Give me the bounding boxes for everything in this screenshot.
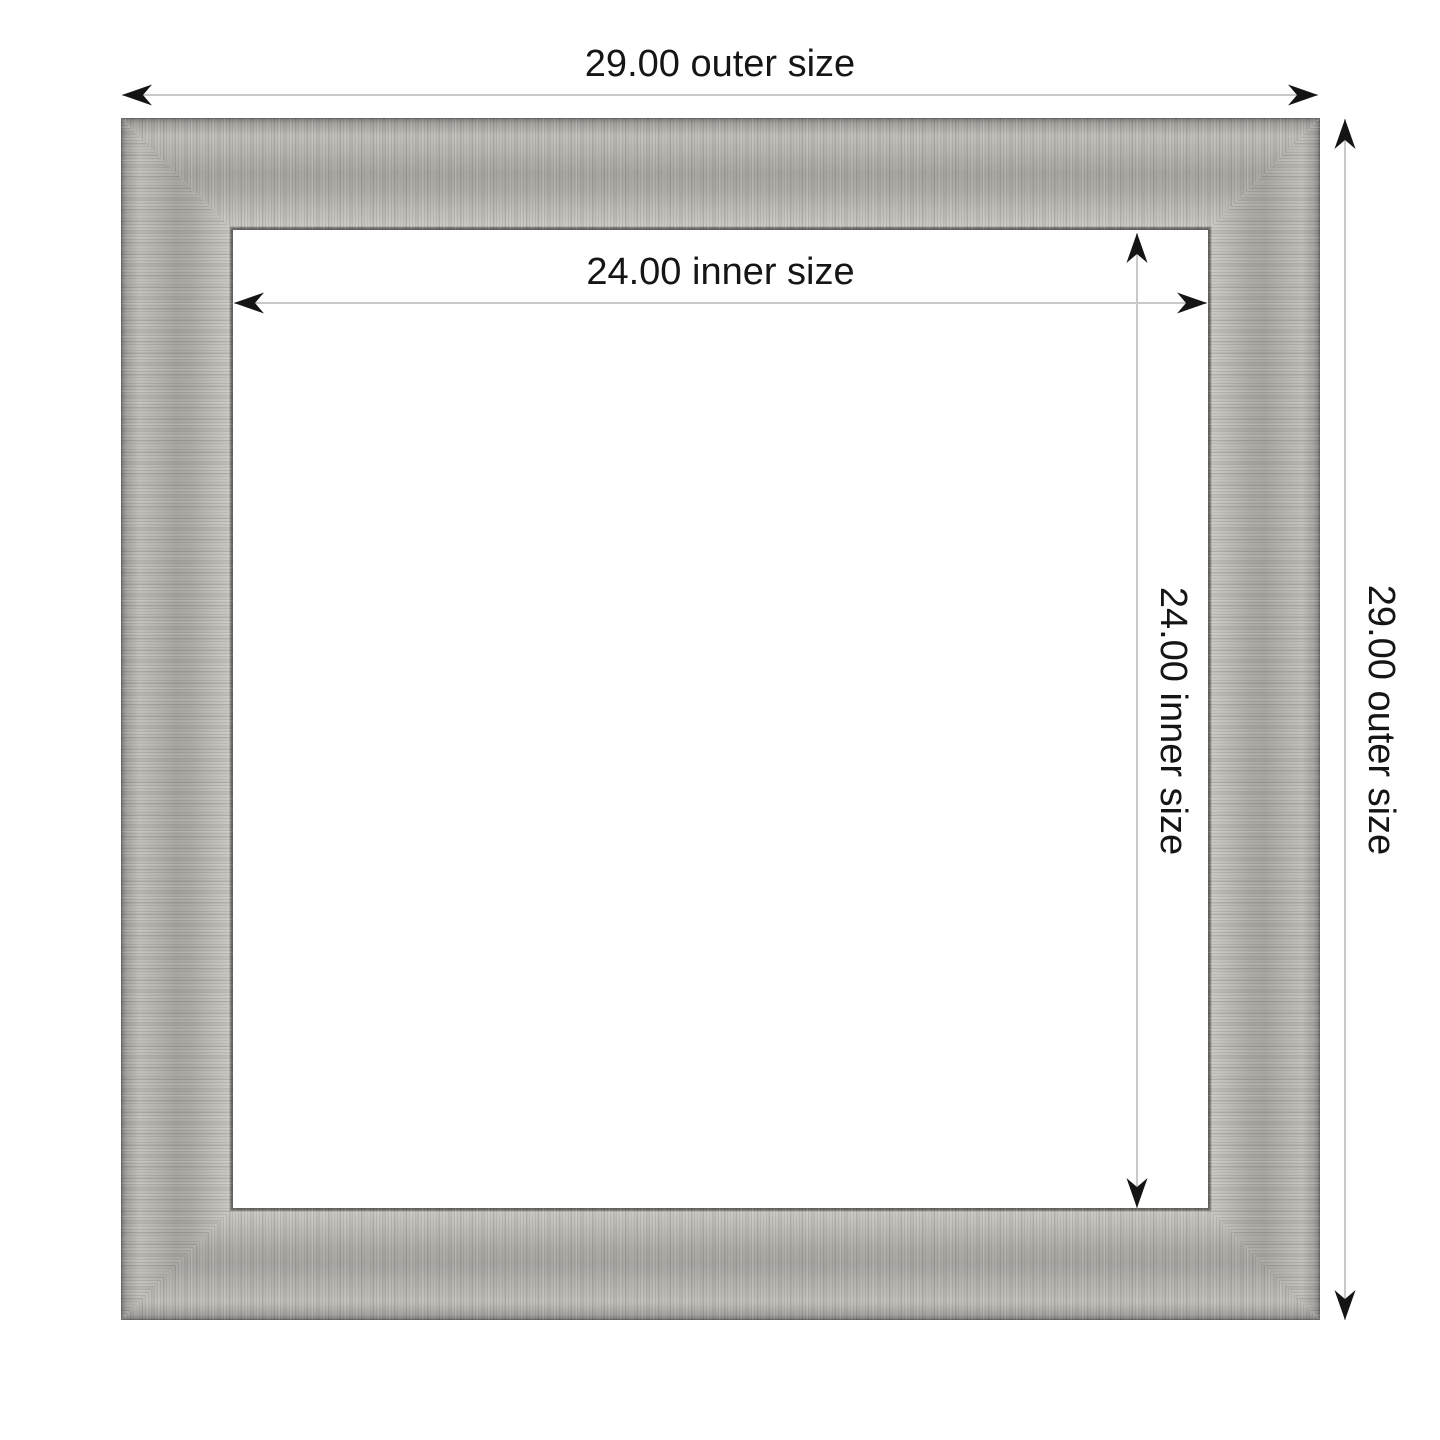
inner-width-label: 24.00 inner size [586, 252, 854, 294]
frame-dimension-diagram: 29.00 outer size 24.00 inner size 24.00 … [0, 0, 1440, 1440]
frame-opening [233, 230, 1208, 1208]
outer-height-label: 29.00 outer size [1359, 584, 1401, 854]
dimension-line [122, 94, 1318, 96]
dimension-line [234, 302, 1207, 304]
frame-bottom-piece [121, 1208, 1320, 1320]
frame-left-piece [121, 118, 233, 1320]
frame-top-piece [121, 118, 1320, 230]
dimension-line [1136, 233, 1138, 1208]
outer-width-label: 29.00 outer size [585, 44, 855, 86]
inner-height-label: 24.00 inner size [1151, 586, 1193, 854]
dimension-line [1344, 119, 1346, 1320]
frame-right-piece [1208, 118, 1320, 1320]
picture-frame [121, 118, 1320, 1320]
